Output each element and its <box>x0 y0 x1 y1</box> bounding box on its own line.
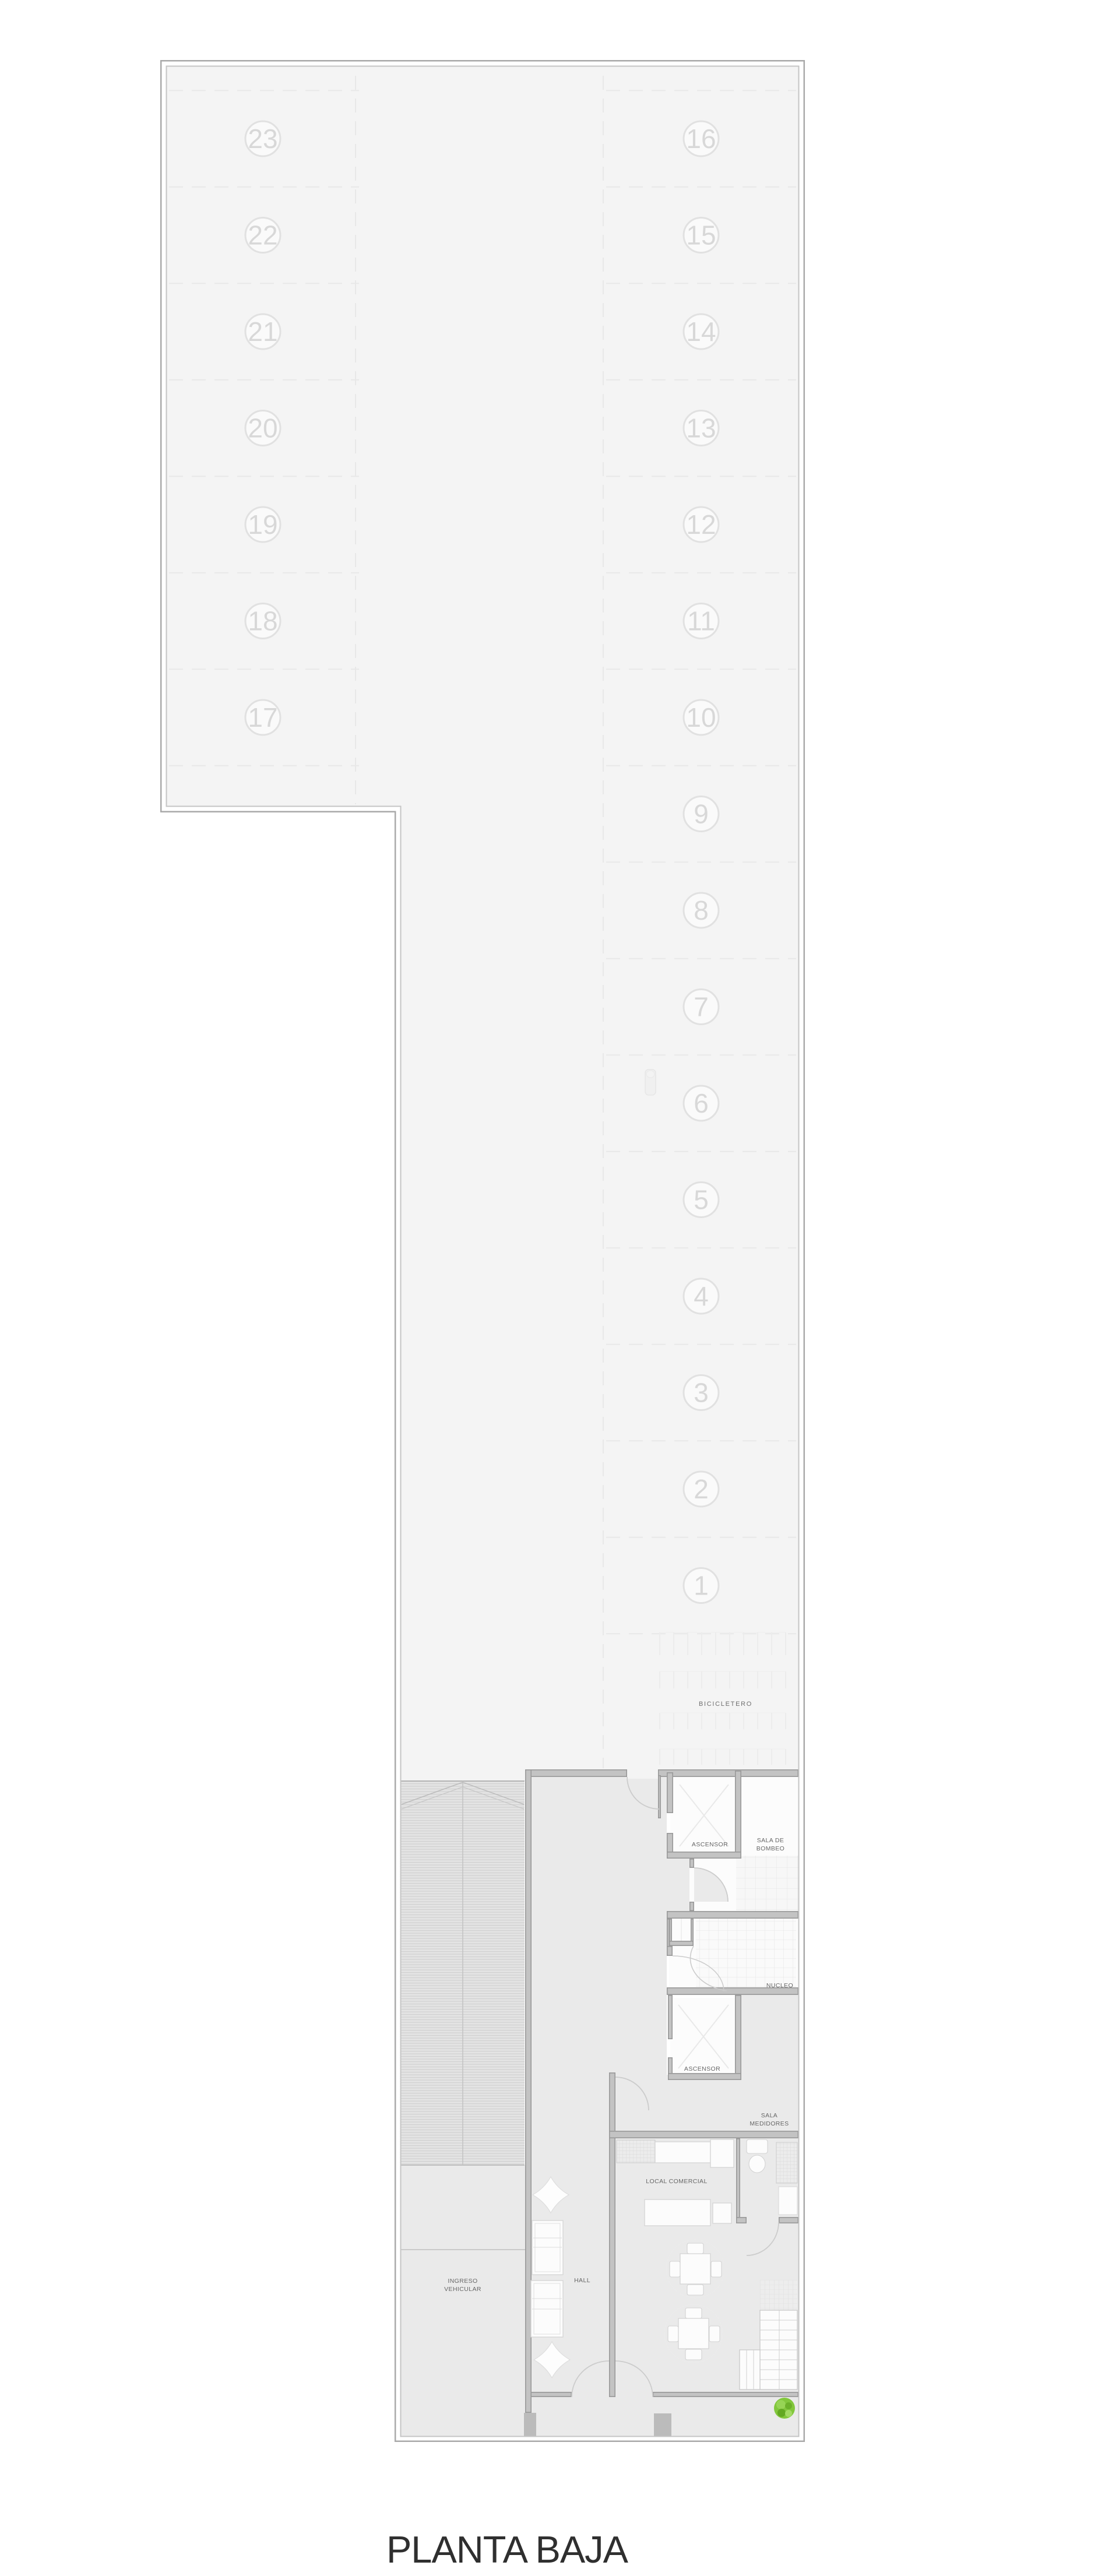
svg-text:PLANTA BAJA: PLANTA BAJA <box>386 2528 629 2571</box>
svg-text:MEDIDORES: MEDIDORES <box>749 2120 789 2127</box>
svg-text:15: 15 <box>686 220 716 251</box>
svg-text:BICICLETERO: BICICLETERO <box>699 1701 752 1708</box>
svg-text:19: 19 <box>248 509 277 540</box>
svg-text:16: 16 <box>686 124 716 154</box>
svg-text:SALA: SALA <box>761 2112 777 2119</box>
svg-text:VEHICULAR: VEHICULAR <box>444 2286 481 2293</box>
svg-text:9: 9 <box>694 799 709 829</box>
svg-text:BOMBEO: BOMBEO <box>756 1845 785 1852</box>
svg-text:5: 5 <box>694 1185 709 1215</box>
svg-text:4: 4 <box>694 1281 709 1311</box>
svg-text:6: 6 <box>694 1088 709 1118</box>
svg-text:LOCAL COMERCIAL: LOCAL COMERCIAL <box>646 2178 707 2185</box>
svg-text:14: 14 <box>686 316 716 347</box>
svg-text:8: 8 <box>694 895 709 925</box>
svg-text:1: 1 <box>694 1571 709 1601</box>
svg-text:7: 7 <box>694 992 709 1022</box>
svg-text:11: 11 <box>687 606 715 636</box>
svg-text:HALL: HALL <box>574 2277 590 2284</box>
svg-text:21: 21 <box>248 316 277 347</box>
svg-text:17: 17 <box>248 702 277 733</box>
svg-text:ASCENSOR: ASCENSOR <box>692 1841 728 1848</box>
svg-text:3: 3 <box>694 1378 709 1408</box>
svg-text:20: 20 <box>248 413 277 444</box>
svg-text:13: 13 <box>686 413 716 444</box>
svg-text:10: 10 <box>686 702 716 733</box>
svg-text:SALA DE: SALA DE <box>757 1837 784 1844</box>
svg-text:NUCLEO: NUCLEO <box>766 1982 793 1989</box>
svg-text:23: 23 <box>248 124 277 154</box>
svg-text:12: 12 <box>686 509 716 540</box>
svg-text:18: 18 <box>248 606 277 636</box>
svg-text:22: 22 <box>248 220 277 251</box>
svg-text:ASCENSOR: ASCENSOR <box>684 2065 720 2072</box>
svg-text:INGRESO: INGRESO <box>448 2278 477 2285</box>
svg-text:2: 2 <box>694 1474 709 1504</box>
